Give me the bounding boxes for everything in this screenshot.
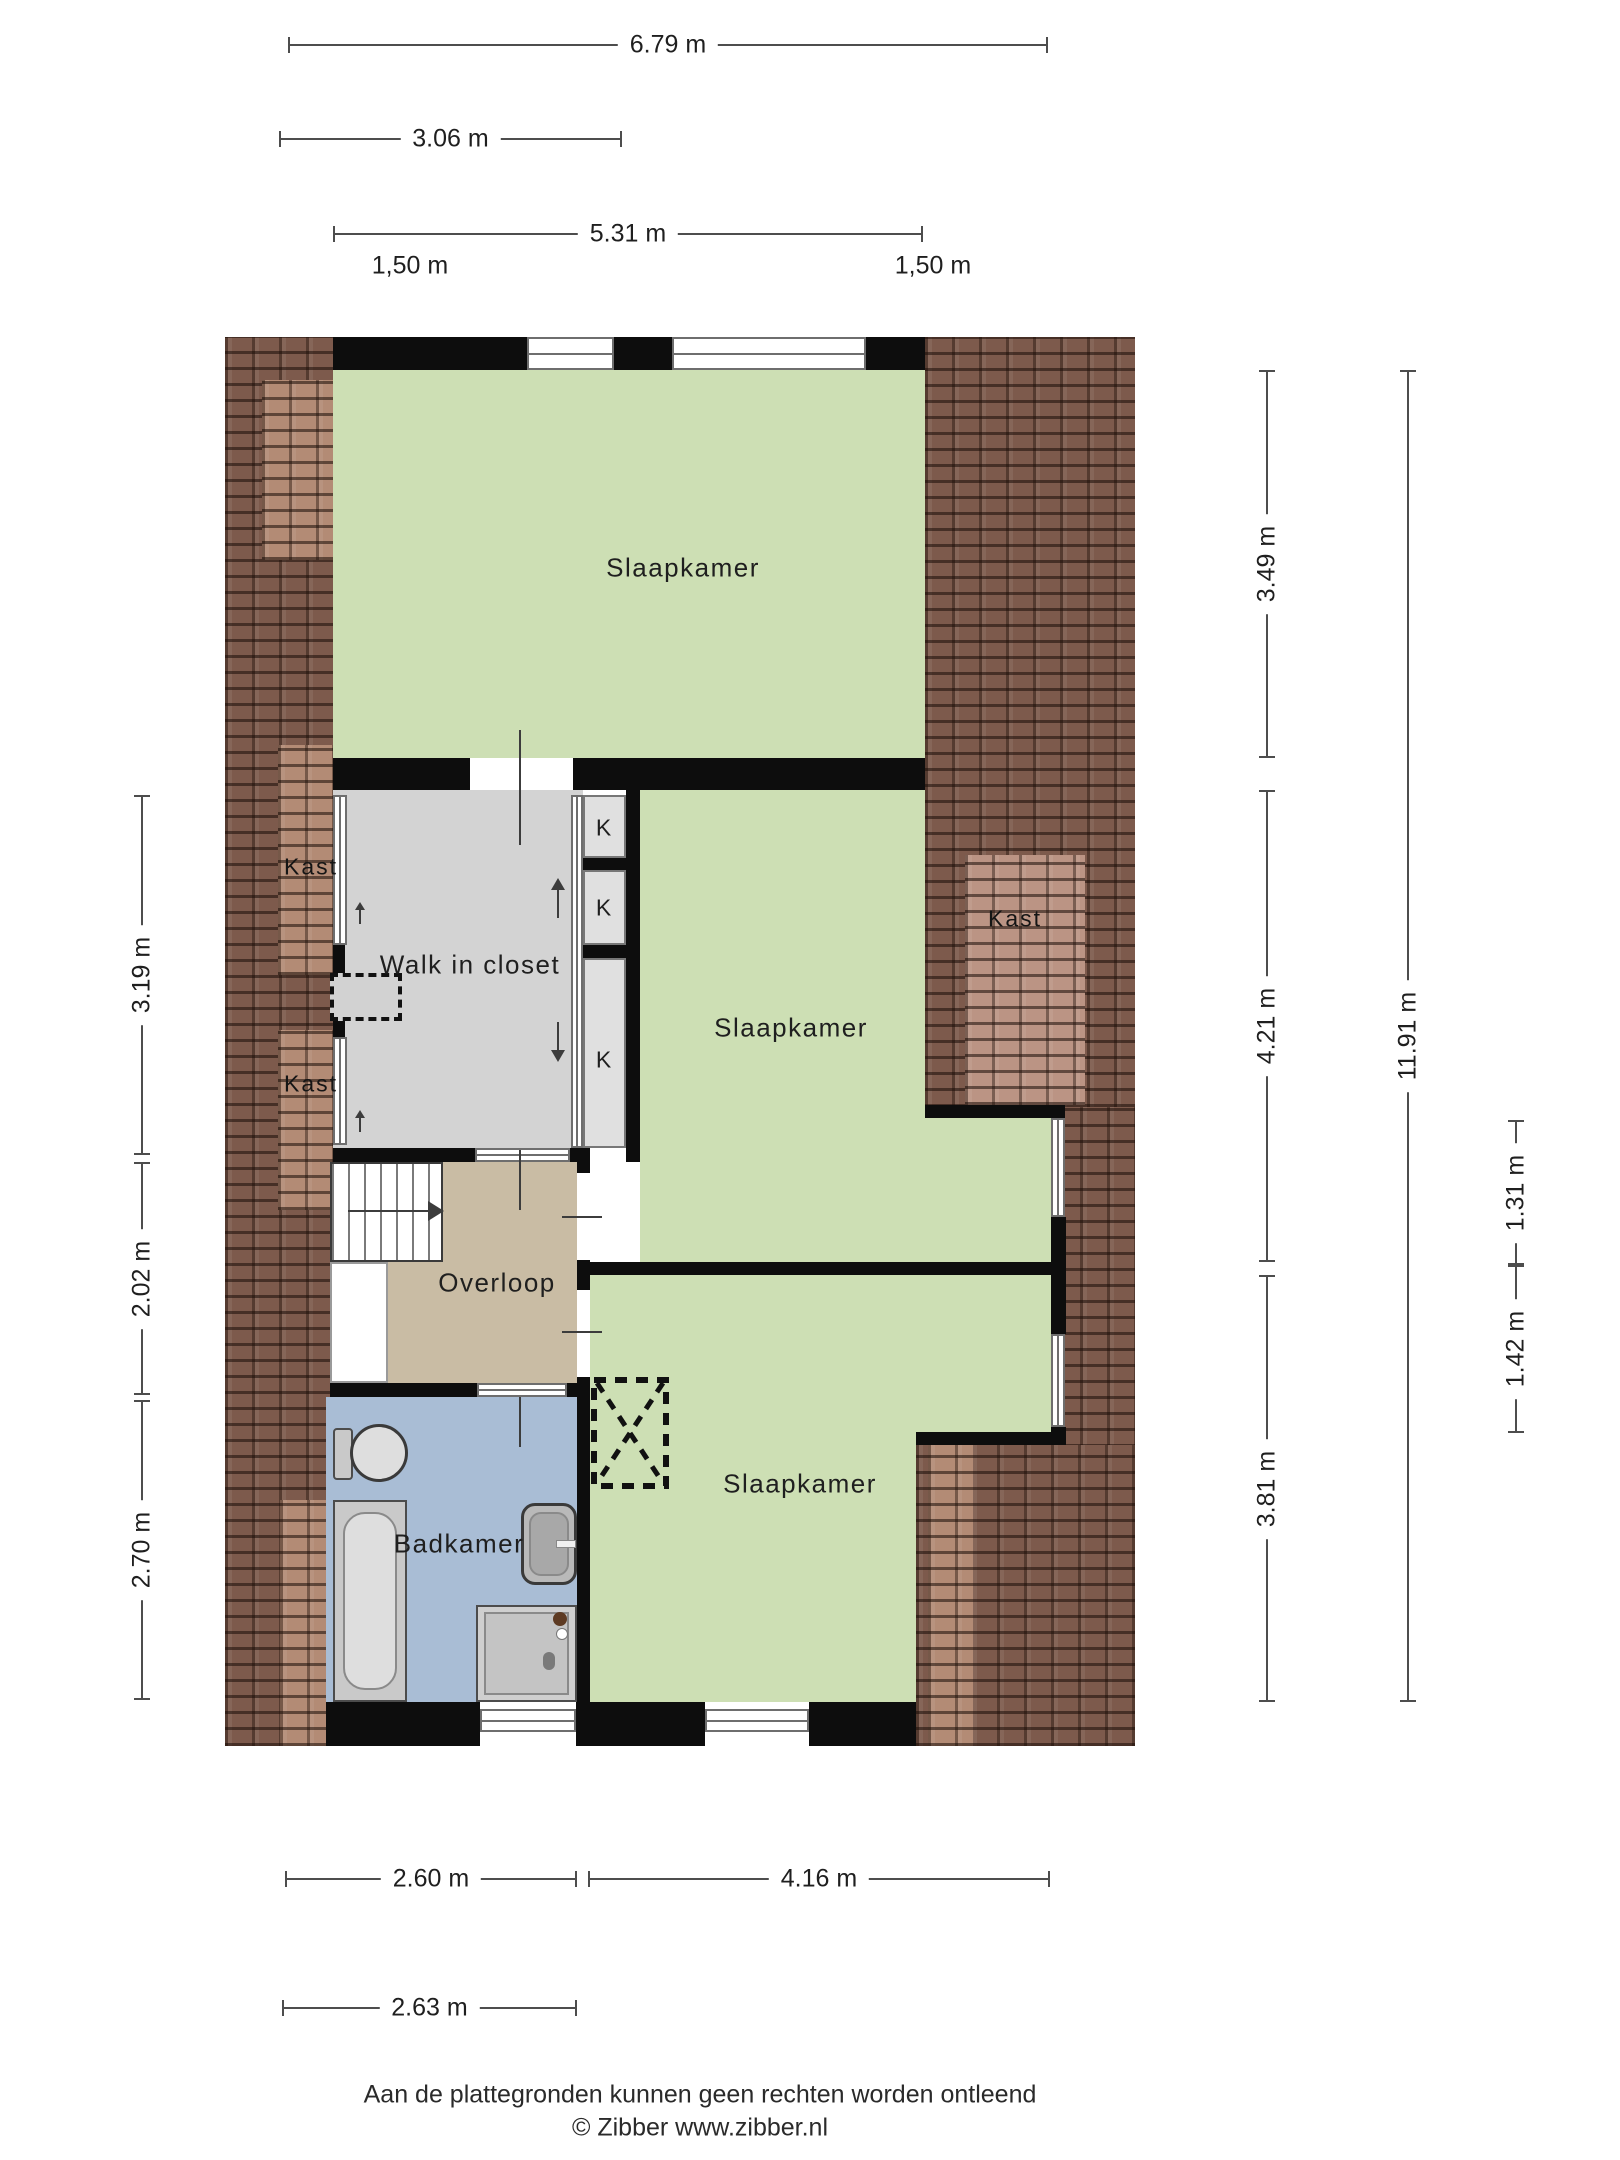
label-kast-left-upper: Kast: [284, 854, 338, 881]
door-top-bedroom: [519, 730, 521, 845]
wall-bottom-2: [576, 1702, 705, 1746]
stairs-direction-line: [348, 1210, 430, 1212]
wall-mid-bottom: [587, 1262, 1065, 1275]
door-leaf-bottombedroom: [562, 1331, 602, 1333]
roof-dormer-top-left: [262, 380, 333, 560]
stairwell-void: [330, 1262, 388, 1383]
bedroom-mid-extension-floor: [925, 1118, 1053, 1275]
door-leaf-bathroom: [519, 1397, 521, 1447]
door-closet-landing: [475, 1148, 570, 1162]
dim-right-142: 1.42 m: [1515, 1265, 1517, 1433]
shower-drain-icon: [553, 1612, 567, 1626]
wall-top-1: [333, 337, 527, 370]
dim-bottom-260: 2.60 m: [285, 1878, 577, 1880]
stairs-direction-arrow: [428, 1201, 444, 1221]
wall-bottom-3: [809, 1702, 916, 1746]
sink-faucet-icon: [556, 1540, 576, 1548]
roof-dormer-bottom-right: [928, 1445, 973, 1746]
roof-dormer-kast-lower: [278, 1030, 333, 1210]
slope-tick-lower: [359, 1116, 361, 1132]
label-kast-right: Kast: [988, 906, 1042, 933]
dim-knee-left: 1,50 m: [372, 252, 448, 281]
window-top-1: [527, 337, 614, 370]
wall-top-2: [614, 337, 672, 370]
dim-knee-right: 1,50 m: [895, 252, 971, 281]
dim-right-421: 4.21 m: [1266, 790, 1268, 1262]
wall-closet-bottom-1: [333, 1148, 475, 1162]
wall-bath-top-1: [330, 1383, 477, 1397]
slope-arrow-up-line: [557, 888, 559, 918]
room-label-landing: Overloop: [438, 1268, 556, 1299]
door-leaf-midbedroom: [562, 1216, 602, 1218]
wall-bath-top-2: [567, 1383, 590, 1397]
closet-glazing-strip: [571, 795, 583, 1148]
dim-top-531: 5.31 m: [333, 233, 923, 235]
floorplan-page: Slaapkamer Slaapkamer Slaapkamer Walk in…: [0, 0, 1620, 2160]
shower-mixer-icon: [543, 1652, 555, 1670]
disclaimer-text: Aan de plattegronden kunnen geen rechten…: [364, 2081, 1037, 2110]
slope-arrow-down-icon: [551, 1050, 565, 1062]
dim-left-319: 3.19 m: [141, 795, 143, 1155]
room-label-walk-in-closet: Walk in closet: [380, 950, 560, 981]
landing-floor-lower: [388, 1262, 445, 1383]
wall-landing-right-1: [577, 1150, 590, 1173]
dim-bottom-416: 4.16 m: [588, 1878, 1050, 1880]
dim-right-349: 3.49 m: [1266, 370, 1268, 758]
wall-landing-right-2: [577, 1260, 590, 1290]
bathtub-inner: [343, 1512, 397, 1690]
window-bottom-1: [480, 1709, 576, 1732]
wall-mid-2: [573, 758, 925, 790]
room-label-bathroom: Badkamer: [394, 1529, 525, 1560]
label-kast-left-lower: Kast: [284, 1071, 338, 1098]
wall-k-right: [626, 790, 640, 1162]
wall-bb-notch: [916, 1432, 1066, 1445]
doorway-landing-bottombedroom: [577, 1290, 590, 1377]
door-leaf-closet: [519, 1150, 521, 1210]
dim-right-381: 3.81 m: [1266, 1275, 1268, 1702]
window-bottom-bedroom-right: [1051, 1334, 1065, 1427]
wall-top-3: [866, 337, 925, 370]
room-label-bedroom-mid: Slaapkamer: [714, 1013, 868, 1044]
k-sep-1: [583, 858, 626, 870]
window-top-2: [672, 337, 866, 370]
door-bathroom: [477, 1383, 567, 1397]
wall-bb-right-1: [1051, 1275, 1066, 1334]
shower-knob-icon: [556, 1628, 568, 1640]
dim-right-1191: 11.91 m: [1407, 370, 1409, 1702]
dim-top-679: 6.79 m: [288, 44, 1048, 46]
label-k1: K: [596, 815, 612, 842]
wall-mid-1: [333, 758, 470, 790]
wall-bathroom-right: [577, 1397, 590, 1702]
window-bottom-2: [705, 1709, 809, 1732]
copyright-text: © Zibber www.zibber.nl: [572, 2114, 828, 2143]
toilet-bowl: [350, 1424, 408, 1482]
room-label-bedroom-bottom: Slaapkamer: [723, 1469, 877, 1500]
label-k3: K: [596, 1047, 612, 1074]
room-label-bedroom-top: Slaapkamer: [606, 553, 760, 584]
window-ext: [1051, 1118, 1065, 1217]
wall-ext-top: [925, 1105, 1065, 1118]
roof-dormer-kast-right: [965, 855, 1085, 1105]
slope-tick-upper: [359, 908, 361, 924]
dim-left-202: 2.02 m: [141, 1162, 143, 1395]
dim-right-131: 1.31 m: [1515, 1120, 1517, 1265]
k-sep-2: [583, 945, 626, 958]
slope-arrow-up-icon: [551, 878, 565, 890]
staircase: [330, 1162, 443, 1262]
label-k2: K: [596, 895, 612, 922]
slope-tick-lower-icon: [355, 1110, 365, 1118]
dashed-shower-square: [591, 1377, 669, 1489]
dim-left-270: 2.70 m: [141, 1400, 143, 1700]
roof-dormer-bottom-left: [280, 1500, 326, 1746]
slope-tick-upper-icon: [355, 902, 365, 910]
slope-arrow-down-line: [557, 1022, 559, 1052]
wall-bottom-1: [326, 1702, 480, 1746]
dim-top-306: 3.06 m: [279, 138, 622, 140]
dim-bottom-263: 2.63 m: [282, 2007, 577, 2009]
